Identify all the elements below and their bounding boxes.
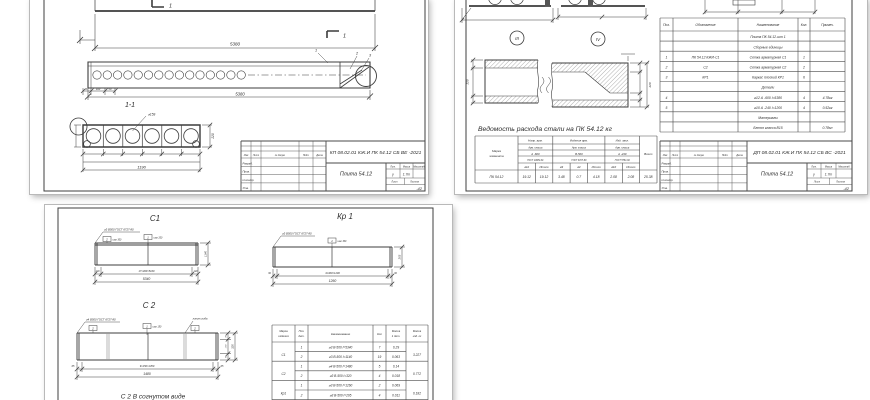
steel-gost: ГОСТ 10884-81 [527,159,544,162]
spec-pos: 3 [666,76,668,80]
node-detail-circle [356,66,377,87]
mesh-kol: 5 [379,365,381,369]
mesh-c1: С1 ⌀3 В500 ГОСТ 6727-80 2 шаг 300 1 шаг … [93,214,211,285]
dim-label: 100 [96,87,101,91]
steel-total-header: Всего [644,152,653,156]
mesh-c2: С 2 ⌀4 В500 ГОСТ 6727-80 2 1 шаг 150 2 л… [72,301,238,400]
detail-ref-label: IV [596,37,601,42]
spec-name: Сетка арматурная С2 [750,66,787,70]
pos-flag: 2 [193,327,196,331]
sheet1-canvas: 5380 1 1 1 2 3 60 100 [30,0,428,194]
mass-label: Масса [403,165,411,168]
mesh-h: Поз. [299,329,305,333]
pos-flag: 2 [91,327,94,331]
steel-group: Изд. закл. [616,139,629,143]
spec-name: Сборные единицы [753,45,783,49]
dim-label: 30 [268,272,271,275]
spec-header: Наименование [757,23,780,27]
spec-name: Сетка арматурная С1 [750,55,787,59]
mesh-kol: 2 [378,384,381,388]
cut-end [588,0,593,7]
pos-flag-note: шаг 300 [113,240,123,242]
mesh-m1: 0.018 [392,374,400,378]
steel-val: 19.12 [522,175,531,179]
spec-name: Детали [761,86,775,90]
lit-value: у [391,173,394,177]
spec-kol: 6 [803,76,805,80]
dim-label: 120 [194,270,199,273]
side-view: 1 2 3 60 100 50 5380 [81,49,377,101]
dim-side: 170 [226,344,228,348]
stamp-row: Разраб. [243,161,253,165]
dim-total: 1480 [143,372,151,376]
pos-flag: 1 [331,239,333,243]
lit-label: Лит. [810,165,817,168]
stamp-col: Дата [735,154,743,157]
dim-label: 4×300=1200 [325,271,340,275]
mesh-name: ⌀4 В-500 l=1480 [329,365,353,369]
spec-header: Обозначение [695,23,715,27]
steel-val: 2.08 [627,175,635,179]
steel-armclass: Арм. класса [527,146,543,149]
mesh-pos: 2 [300,355,303,359]
steel-dia: ⌀10 [611,165,616,169]
dim-side: 1140 [204,251,208,257]
sheet-plita-assembly: 5380 1 1 1 2 3 60 100 [30,0,428,194]
spec-kol: 4 [803,96,805,100]
sheet-meshes: С1 ⌀3 В500 ГОСТ 6727-80 2 шаг 300 1 шаг … [45,205,452,400]
mesh-h: Масса [392,329,401,333]
dim-label: 30 [394,272,397,275]
dim-label: 65 [72,365,75,368]
mesh-pos: 1 [301,365,303,369]
mesh-h: 1 дет. [392,334,401,338]
steel-armclass: Арм. класса [571,146,587,149]
dim-total: 1260 [329,279,337,283]
spec-header: Кол. [801,23,808,27]
mesh-h: изделия [278,334,289,338]
sheet3-canvas: С1 ⌀3 В500 ГОСТ 6727-80 2 шаг 300 1 шаг … [45,205,452,400]
sheet2-canvas: III IV 220 220 Ведомость [455,0,867,194]
list-label: Лист [813,181,820,184]
steel-val: 19.12 [540,175,549,179]
steel-val: 2.08 [609,175,617,179]
bend-lines [107,333,186,360]
mesh-m1: 0.011 [392,393,400,397]
c2-bent-caption: С 2 В согнутом виде [121,393,186,400]
detail-height-dim: 220 [648,82,652,88]
spec-oboz: С2 [703,66,707,70]
stamp-row: Пров. [662,170,670,174]
drawing-title: Плита 54.12 [761,172,793,178]
spec-kol: 4 [803,106,805,110]
spec-prim: 0.52кг [823,106,833,110]
spec-name: Каркас плоский КР1 [752,76,784,80]
spec-header: Поз. [663,23,670,27]
titleblock-sheet2: Изм Лист № докум. Подп. Дата Разраб. Про… [660,141,852,191]
mesh-c2-label: С 2 [143,301,156,310]
spec-name: Бетон класса В15 [753,126,782,130]
callout: 2 [355,52,359,56]
node-detail-circle [70,118,87,135]
mesh-h: Наименование [331,332,351,336]
steel-val: 25.38 [643,175,653,179]
spec-oboz: КР1 [702,76,708,80]
kr1-note: ⌀3 В500 ГОСТ 6727-80 [282,232,312,236]
callout: 3 [369,54,372,58]
steel-dia: Итого [626,165,635,169]
mesh-pos: 2 [300,393,303,397]
mesh-mass: 0.182 [413,391,421,395]
stamp-col: Подп. [722,154,729,157]
stamp-col: Дата [315,154,323,157]
mesh-kol: 19 [378,355,382,359]
pos-flag: 1 [146,325,148,329]
steel-class: В-500 [575,152,583,156]
mesh-name: ⌀3 В-500 l=1140 [329,355,353,359]
steel-val: 0.7 [576,175,581,179]
steel-table-heading: Ведомость расхода стали на ПК 54.12 кг [478,125,613,133]
mesh-rows: С1 3.227 1 ⌀3 В-500 l=5340 7 0.29 2 ⌀3 В… [281,345,421,397]
mesh-m1: 0.063 [392,355,400,359]
section-mark-right: 1 [343,34,346,40]
stamp-row: Утв. [243,186,250,190]
width-dim: 1190 [137,164,146,169]
steel-armclass: Арм. класса [614,146,630,149]
spec-pos: 2 [665,66,668,70]
mesh-pos: 1 [301,384,303,388]
spec-prim: 0.78м³ [822,126,833,130]
mesh-h: изд. кг [413,334,422,338]
stamp-row: Утв. [662,186,669,190]
mesh-pos: 2 [300,374,303,378]
scale-label: Масштаб [413,165,425,168]
steel-class: А -600 [530,152,540,156]
steel-val: 4.18 [593,175,600,179]
list-label: Лист [390,181,397,184]
bend-line-note: линия сгиба [192,317,208,321]
spec-name: ⌀10 А -240 l=1200 [754,106,782,110]
mesh-m1: 0.069 [392,384,400,388]
void-ends [93,71,246,79]
mesh-h: Кол [377,332,382,336]
cross-section-1-1: ⌀159 220 1190 [70,113,215,173]
spec-pos: 1 [666,55,668,59]
pos-flag: 2 [105,238,108,242]
section-view-label: 1-1 [125,102,135,109]
dim-label: 9×150=1350 [140,364,155,368]
pos-flag-note: шаг 300 [338,241,348,243]
stamp-row: Разраб. [662,161,672,165]
mesh-marka: С2 [281,372,285,376]
detail-height-dim: 220 [466,79,470,85]
steel-dia: ⌀4 [577,165,581,169]
steel-dia: ⌀12 [524,165,529,169]
mesh-name: ⌀3 В-500 l=320 [330,374,352,378]
dim-total: 5340 [143,277,151,281]
steel-gost: ГОСТ 6727-80 [571,160,587,162]
spec-pos: 4 [666,96,668,100]
stamp-col: № докум. [275,154,286,157]
mesh-kol: 4 [379,393,381,397]
mesh-c1-label: С1 [150,214,160,223]
mesh-h: Масса [413,329,422,333]
mesh-name: ⌀3 В-500 l=5340 [329,345,353,349]
steel-consumption-table: Марка элемента Напр. арм. Изделия арм. И… [475,136,657,183]
steel-class: А -240 [617,152,627,156]
spec-pos: 5 [666,106,668,110]
spec-oboz: ПК 54.12 КЖИ-С1 [692,55,720,59]
stamp-col: Лист [671,154,678,157]
dim-label: 120 [96,270,101,273]
mesh-kol: 4 [379,374,381,378]
cut-end [545,0,550,7]
mesh-table: Марка изделия Поз. дет. Наименование Кол… [272,325,428,400]
height-dim: 220 [211,133,215,140]
lit-value: у [812,173,815,177]
steel-dia: Итого [539,165,548,169]
steel-dia: ⌀3 [560,165,564,169]
scale-label: Масштаб [838,165,850,168]
dim-total: 5380 [235,92,245,97]
listov-label: Листов [409,181,419,184]
doc-code: КП 08.02.01 КЖ.И ПК 54.12 СБ ВЕ -2021 [330,150,422,156]
plan-view: 5380 1 1 [77,0,378,51]
mesh-kol: 7 [379,345,381,349]
mass-label: Масса [825,165,833,168]
mesh-h: Марка [279,329,288,333]
dim-label: 17×300=5100 [138,269,155,273]
spec-header: Примеч. [821,23,834,27]
spec-kol: 1 [803,55,805,59]
sheet2-inner-frame [466,0,852,191]
steel-row-marka: ПК 54.12 [490,175,504,179]
stamp-row: Пров. [243,170,251,174]
stamp-col: № докум. [694,154,705,157]
plan-dim-total: 5380 [230,42,241,47]
group-code: -42 [416,186,423,191]
mesh-marka: Кр1 [281,391,287,395]
dim-side: 205 [398,254,402,260]
dim-label: 50 [109,87,112,91]
group-code: -42 [843,186,850,191]
detail-IV: 220 [540,54,652,109]
spec-name: ⌀12 А -600 l=5380 [754,96,782,100]
lit-label: Лит. [389,165,396,168]
pos-flag-note: шаг 200 [154,238,164,240]
stamp-col: Изм [244,154,249,157]
titleblock-sheet1: Изм Лист № докум. Подп. Дата Разраб. Про… [241,141,425,191]
mass-value: 1.7т [825,173,833,177]
section-mark-top: 1 [169,4,172,10]
steel-h-marka: Марка [492,149,501,153]
pos-flag-note: шаг 150 [153,327,163,329]
dim-label: 65 [221,365,224,368]
carcass-kr1: Кр 1 ⌀3 В500 ГОСТ 6727-80 1 шаг 300 30 4… [268,212,405,287]
steel-group: Изделия арм. [570,139,588,143]
steel-gost: ГОСТ 5781-82 [615,160,631,162]
stamp-row: Н.контр. [662,178,674,182]
stamp-col: Подп. [303,154,310,157]
mesh-c1-note: ⌀3 В500 ГОСТ 6727-80 [104,228,134,232]
steel-val: 3.48 [558,175,565,179]
mesh-name: ⌀3 В-500 l=1260 [329,384,353,388]
detail-ref-label: III [515,36,520,41]
mesh-c2-note: ⌀4 В500 ГОСТ 6727-80 [86,318,116,322]
sheet3-inner-frame [58,208,433,400]
drawing-workspace: 5380 1 1 1 2 3 60 100 [0,0,870,400]
doc-code: ДП 08.02.01 КЖ.И ПК 54.12 СБ ВС -2021 [752,150,846,156]
specification-table: Поз. Обозначение Наименование Кол. Приме… [660,18,845,132]
mass-value: 1.7т [403,173,411,177]
drawing-title: Плита 54.12 [340,172,372,178]
spec-prim: 4.78кг [823,96,833,100]
mesh-mass: 0.772 [413,372,421,376]
mesh-pos: 1 [301,345,303,349]
mesh-marka: С1 [281,353,285,357]
stamp-col: Изм [663,154,668,157]
sheet-plita-spec: III IV 220 220 Ведомость [455,0,867,194]
spec-name: Материалы [758,116,778,120]
stamp-col: Лист [252,154,259,157]
callout: 1 [315,49,317,53]
spec-rows: Плита ПК 54.12-шт 1 Сборные единицы 1 ПК… [665,35,834,130]
pos-flag: 1 [147,236,149,240]
mesh-h: дет. [298,334,304,338]
steel-h-marka: элемента [489,154,504,158]
mesh-name: ⌀3 В-500 l=205 [330,393,352,397]
steel-group: Напр. арм. [528,139,543,143]
mesh-m1: 0.14 [393,365,399,369]
mesh-mass: 3.227 [413,353,421,357]
void-dia-label: ⌀159 [148,113,155,117]
mesh-m1: 0.29 [393,345,399,349]
spec-kol: 2 [802,66,805,70]
dim-side-total: 320 [231,344,235,349]
stamp-row: Н.контр. [243,178,255,182]
steel-dia: Итого [592,165,601,169]
detail-III: 220 [466,58,539,105]
listov-label: Листов [835,181,845,184]
spec-name: Плита ПК 54.12-шт 1 [750,35,785,39]
section-cut-marks [152,0,339,38]
kr1-label: Кр 1 [337,212,353,221]
